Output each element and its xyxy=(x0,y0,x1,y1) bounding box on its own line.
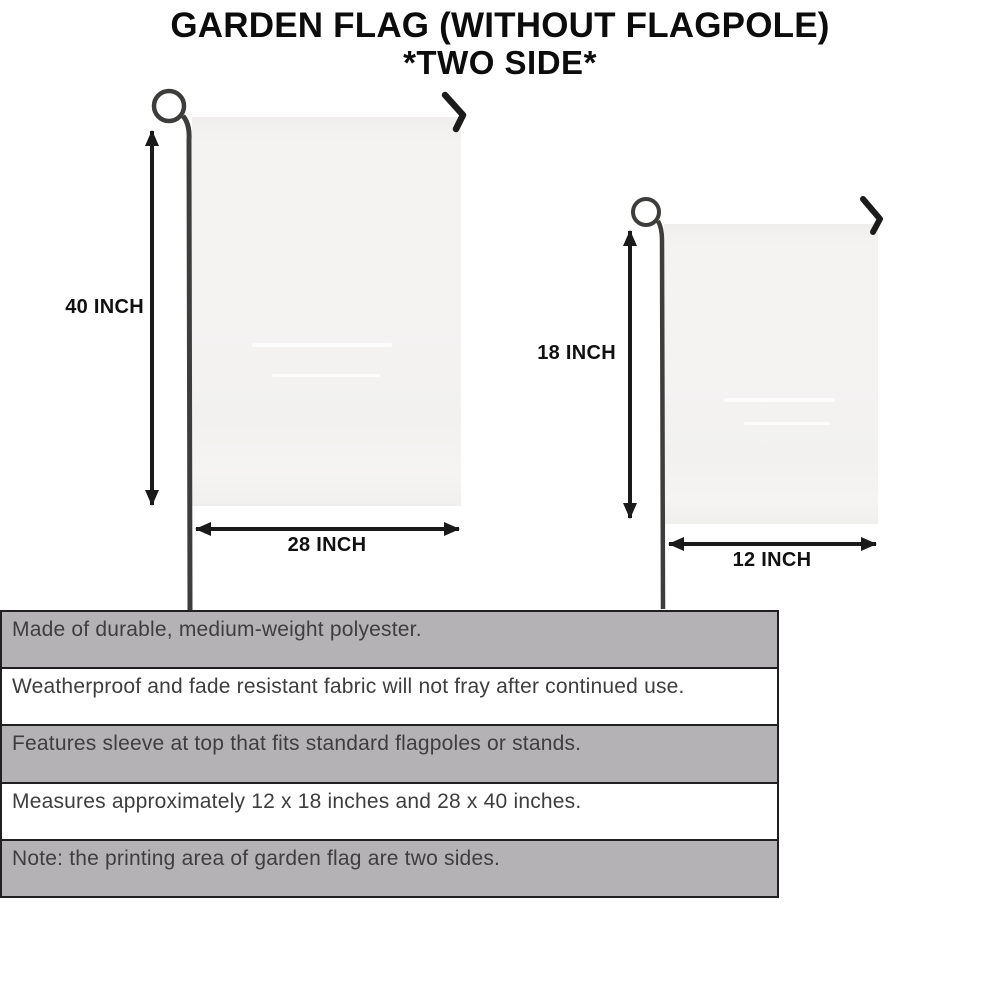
feature-row-sleeve: Features sleeve at top that fits standar… xyxy=(2,726,777,783)
small-flagpole-loop-icon xyxy=(633,199,659,225)
feature-row-note: Note: the printing area of garden flag a… xyxy=(2,841,777,896)
feature-row-weatherproof: Weatherproof and fade resistant fabric w… xyxy=(2,669,777,726)
small-flagpole xyxy=(658,221,663,609)
large-flag-width-label: 28 INCH xyxy=(247,534,407,557)
feature-row-material: Made of durable, medium-weight polyester… xyxy=(2,612,777,669)
small-flag-height-label: 18 INCH xyxy=(530,342,616,365)
feature-row-measurements: Measures approximately 12 x 18 inches an… xyxy=(2,784,777,841)
large-flag-height-label: 40 INCH xyxy=(58,296,144,319)
feature-list: Made of durable, medium-weight polyester… xyxy=(0,610,779,898)
product-size-chart: GARDEN FLAG (WITHOUT FLAGPOLE) *TWO SIDE… xyxy=(0,0,1000,1000)
large-flag-hook-icon xyxy=(445,95,463,129)
small-flag-width-label: 12 INCH xyxy=(692,549,852,572)
large-flagpole xyxy=(183,116,190,611)
large-flagpole-loop-icon xyxy=(154,91,184,121)
small-flag-hook-icon xyxy=(863,199,880,232)
